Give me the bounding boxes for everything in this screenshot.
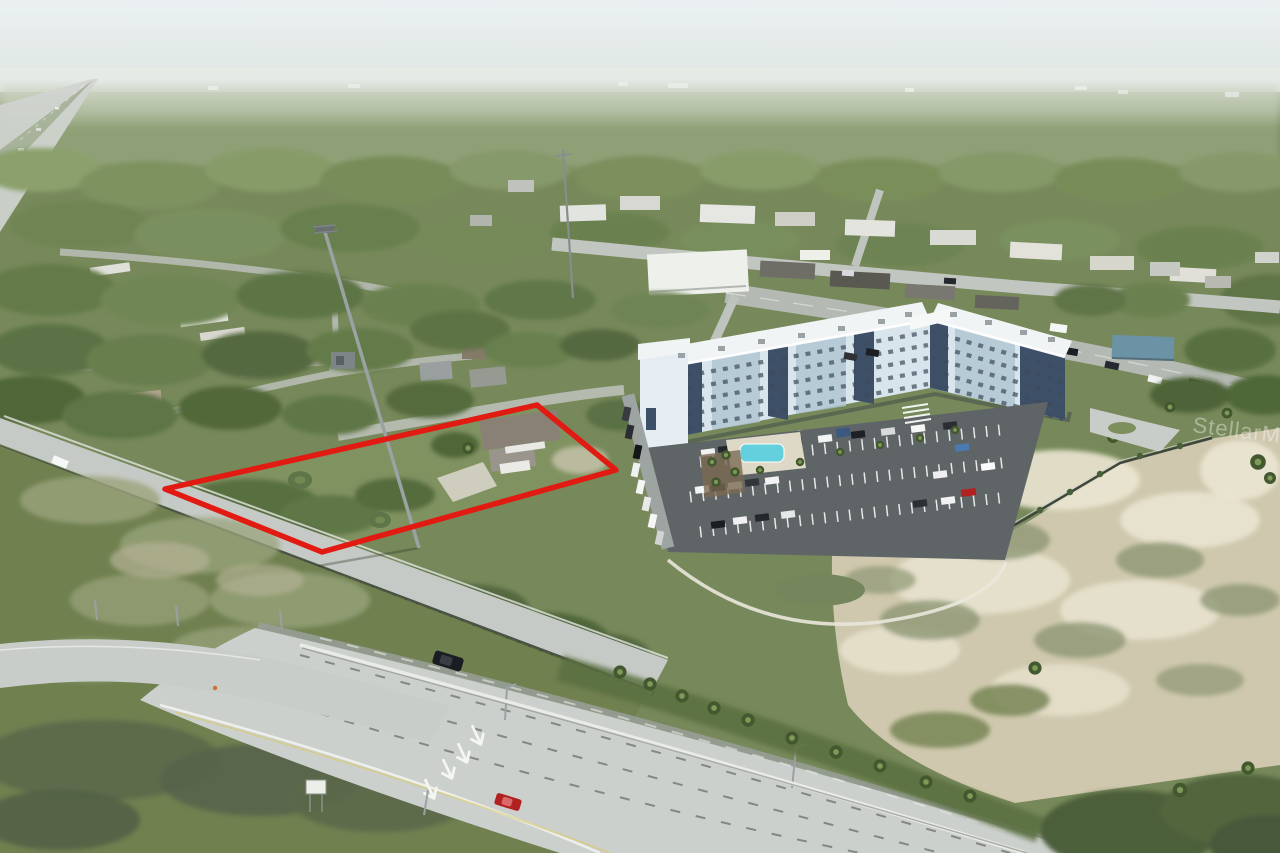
swimming-pool <box>740 444 784 462</box>
palm-tree <box>1165 402 1176 413</box>
aerial-photo: StellarMLS <box>0 0 1280 853</box>
palm-tree <box>1264 472 1276 484</box>
traffic-cone <box>213 686 217 690</box>
horizon-haze <box>0 68 1280 128</box>
road-sign <box>306 780 326 794</box>
palm-tree <box>1028 661 1041 674</box>
aerial-photo-canvas: StellarMLS <box>0 0 1280 853</box>
palm-tree <box>1250 454 1266 470</box>
building-sign-panel <box>646 408 656 430</box>
blue-roof-store <box>1112 335 1175 361</box>
building-end-tower <box>640 348 688 452</box>
